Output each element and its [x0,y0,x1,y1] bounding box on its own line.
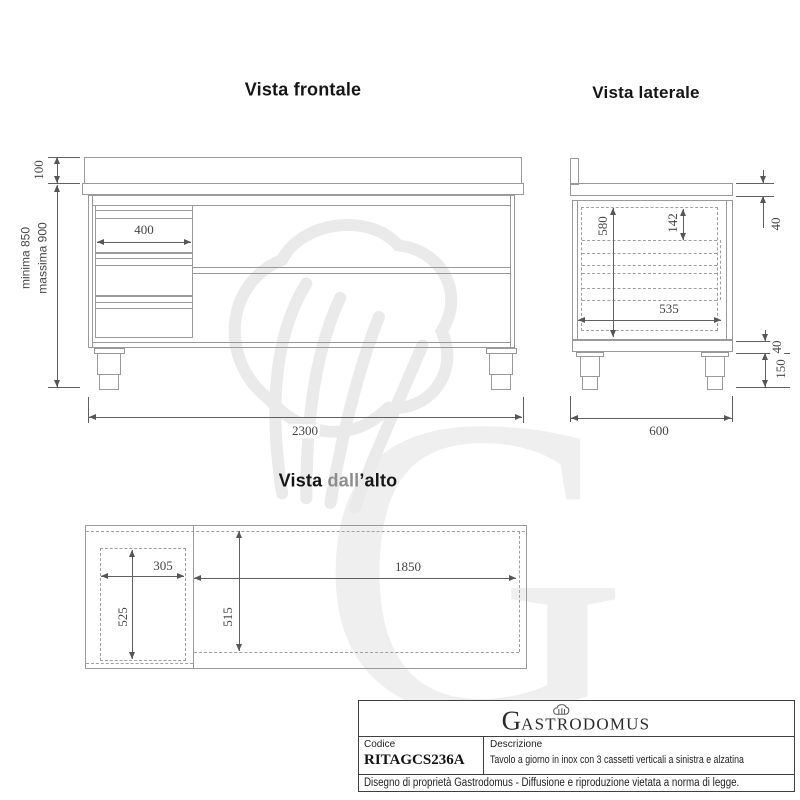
side-right-leg-shaft [705,356,725,377]
front-right-leg-foot [491,374,511,390]
technical-drawing-sheet: G Vista frontale Vista laterale Vista da… [0,0,800,800]
dimension-line [571,418,732,419]
arrowhead [54,380,60,387]
dim-label-height-min: minima 850 [20,225,33,291]
front-shelf-line [193,273,510,274]
side-left-leg-foot [582,376,598,390]
dim-label-leg-height: 150 [774,357,788,381]
drawer-1-handle-line [95,210,192,211]
extension-line [736,183,774,184]
dim-label-upstand-height: 100 [32,158,46,182]
front-body-inner-left-line [92,195,93,348]
top-hidden-line [86,531,525,532]
side-left-leg-shaft [580,356,600,377]
side-hidden-line [582,253,717,254]
extension-line [48,183,80,184]
dim-label-open-width: 1850 [393,560,423,574]
extension-line [732,396,733,422]
arrowhead [236,644,242,651]
dim-label-clear-height: 580 [596,214,610,238]
extension-line [523,397,524,423]
title-block-column-divider [483,736,484,774]
side-right-leg-foot [707,376,723,390]
drawer-2 [95,253,193,296]
dimension-line [194,578,516,579]
dim-label-height-max: massima 900 [37,220,50,295]
drawer-2-handle-line [95,265,192,266]
front-body-inner-right-line [510,195,511,348]
dimension-line [97,242,191,243]
arrowhead [610,208,616,215]
side-hidden-line [582,265,717,266]
side-body-inner-right-line [726,200,727,340]
front-right-leg-shaft [489,353,513,375]
dim-label-drawer-block-depth: 525 [116,605,130,629]
side-backsplash [570,158,579,185]
side-hidden-line [582,300,717,301]
top-hidden-line [194,652,519,653]
arrowhead [571,415,578,421]
arrowhead [129,652,135,659]
dimension-line [613,208,614,337]
arrowhead [97,239,104,245]
code-value: RITAGCS236A [364,752,465,769]
front-shelf-line [193,267,510,268]
dimension-line [239,531,240,651]
drawer-2-handle-line [95,258,192,259]
arrowhead [101,573,108,579]
dim-label-drawer-front-height: 142 [666,211,680,235]
description-label: Descrizione [490,739,542,750]
extension-line [736,196,774,197]
extension-line [736,387,790,388]
top-hidden-line [86,663,193,664]
dim-label-base-frame: 40 [770,339,784,356]
arrowhead [680,209,686,216]
arrowhead [236,531,242,538]
legal-note: Disegno di proprietà Gastrodomus - Diffu… [364,777,739,789]
description-value: Tavolo a giorno in inox con 3 cassetti v… [490,754,744,766]
arrowhead [89,414,96,420]
top-view-title-black1: Vista [279,471,328,491]
dim-label-overall-width: 2300 [290,424,320,438]
gastrodomus-logo: GASTRODOMUS [502,706,651,737]
front-bottom-shelf-line [92,342,510,343]
arrowhead [54,185,60,192]
front-left-leg-shaft [97,353,121,375]
dim-label-drawer-block-width: 305 [151,559,175,573]
dimension-line [578,320,721,321]
side-worktop [570,183,733,196]
logo-chef-hat-icon [552,703,570,716]
arrowhead [54,176,60,183]
side-base-frame [572,340,733,352]
dim-label-overall-depth: 600 [647,424,671,438]
side-view-title: Vista laterale [592,83,699,103]
extension-line [48,387,80,388]
arrowhead [184,239,191,245]
arrowhead [54,157,60,164]
arrowhead [177,573,184,579]
dimension-line [57,185,58,387]
top-hidden-line [519,531,520,652]
arrowhead [578,317,585,323]
top-view-title: Vista dall’alto [279,471,398,492]
front-backsplash [84,157,522,184]
drawer-3-handle-line [95,302,192,303]
dim-label-drawer-width: 400 [132,223,156,237]
top-view-title-gray-word: dall [328,471,360,491]
dimension-line [132,550,133,659]
arrowhead [680,233,686,240]
dimension-line [89,417,522,418]
dim-label-upstand-top: 40 [769,216,783,233]
front-left-leg-foot [99,374,119,390]
arrowhead [509,575,516,581]
dim-label-clear-depth: 535 [657,302,681,316]
top-view-title-black2: ’alto [359,471,397,491]
arrowhead [762,334,768,341]
arrowhead [610,330,616,337]
arrowhead [194,575,201,581]
code-label: Codice [364,739,395,750]
arrowhead [760,176,766,183]
front-worktop [82,183,524,195]
logo-initial: G [502,706,522,736]
top-drawer-block-divider [193,525,194,669]
arrowhead [129,550,135,557]
side-hidden-line [582,288,717,289]
front-view-title: Vista frontale [245,80,362,101]
arrowhead [724,415,731,421]
arrowhead [762,380,768,387]
logo-wordmark: ASTRODOMUS [521,715,650,734]
dim-label-open-depth: 515 [221,605,235,629]
drawer-1-handle-line [95,218,192,219]
arrowhead [515,414,522,420]
arrowhead [760,196,766,203]
side-hidden-line [582,273,717,274]
extension-line [48,157,80,158]
title-block-divider [358,774,795,775]
side-hidden-line [582,240,717,241]
drawer-3-handle-line [95,308,192,309]
dimension-line [101,576,184,577]
arrowhead [714,317,721,323]
side-hidden-line [720,240,721,300]
